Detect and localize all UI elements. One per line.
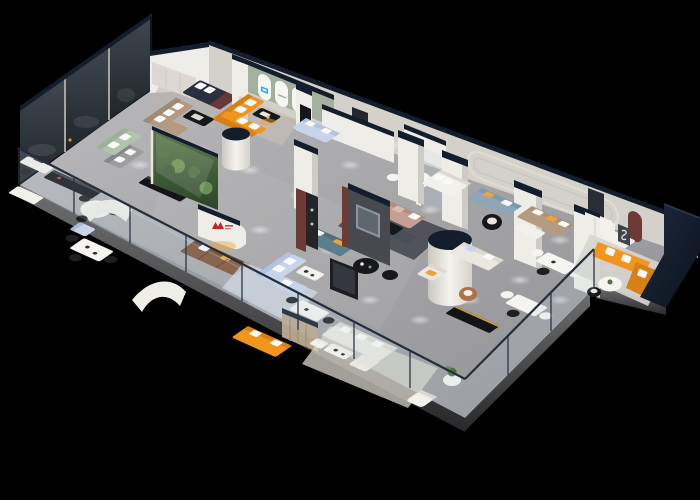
maroon-shelf-panel <box>296 188 306 252</box>
pillar-1 <box>398 130 424 205</box>
silhouette-plant <box>117 88 135 102</box>
gold-pendant <box>266 115 269 118</box>
lamp-dot-1 <box>68 138 71 141</box>
silhouette-sofa-2 <box>73 116 99 128</box>
black-shelf <box>306 192 318 250</box>
small-cylinder-column <box>222 128 250 171</box>
pendant-glow <box>260 119 276 126</box>
black-round-table-1 <box>353 258 379 274</box>
floorplan-svg <box>0 0 700 500</box>
showroom-render <box>0 0 700 500</box>
black-round-table-2 <box>382 270 398 280</box>
partition-maroon-edge <box>342 186 348 248</box>
